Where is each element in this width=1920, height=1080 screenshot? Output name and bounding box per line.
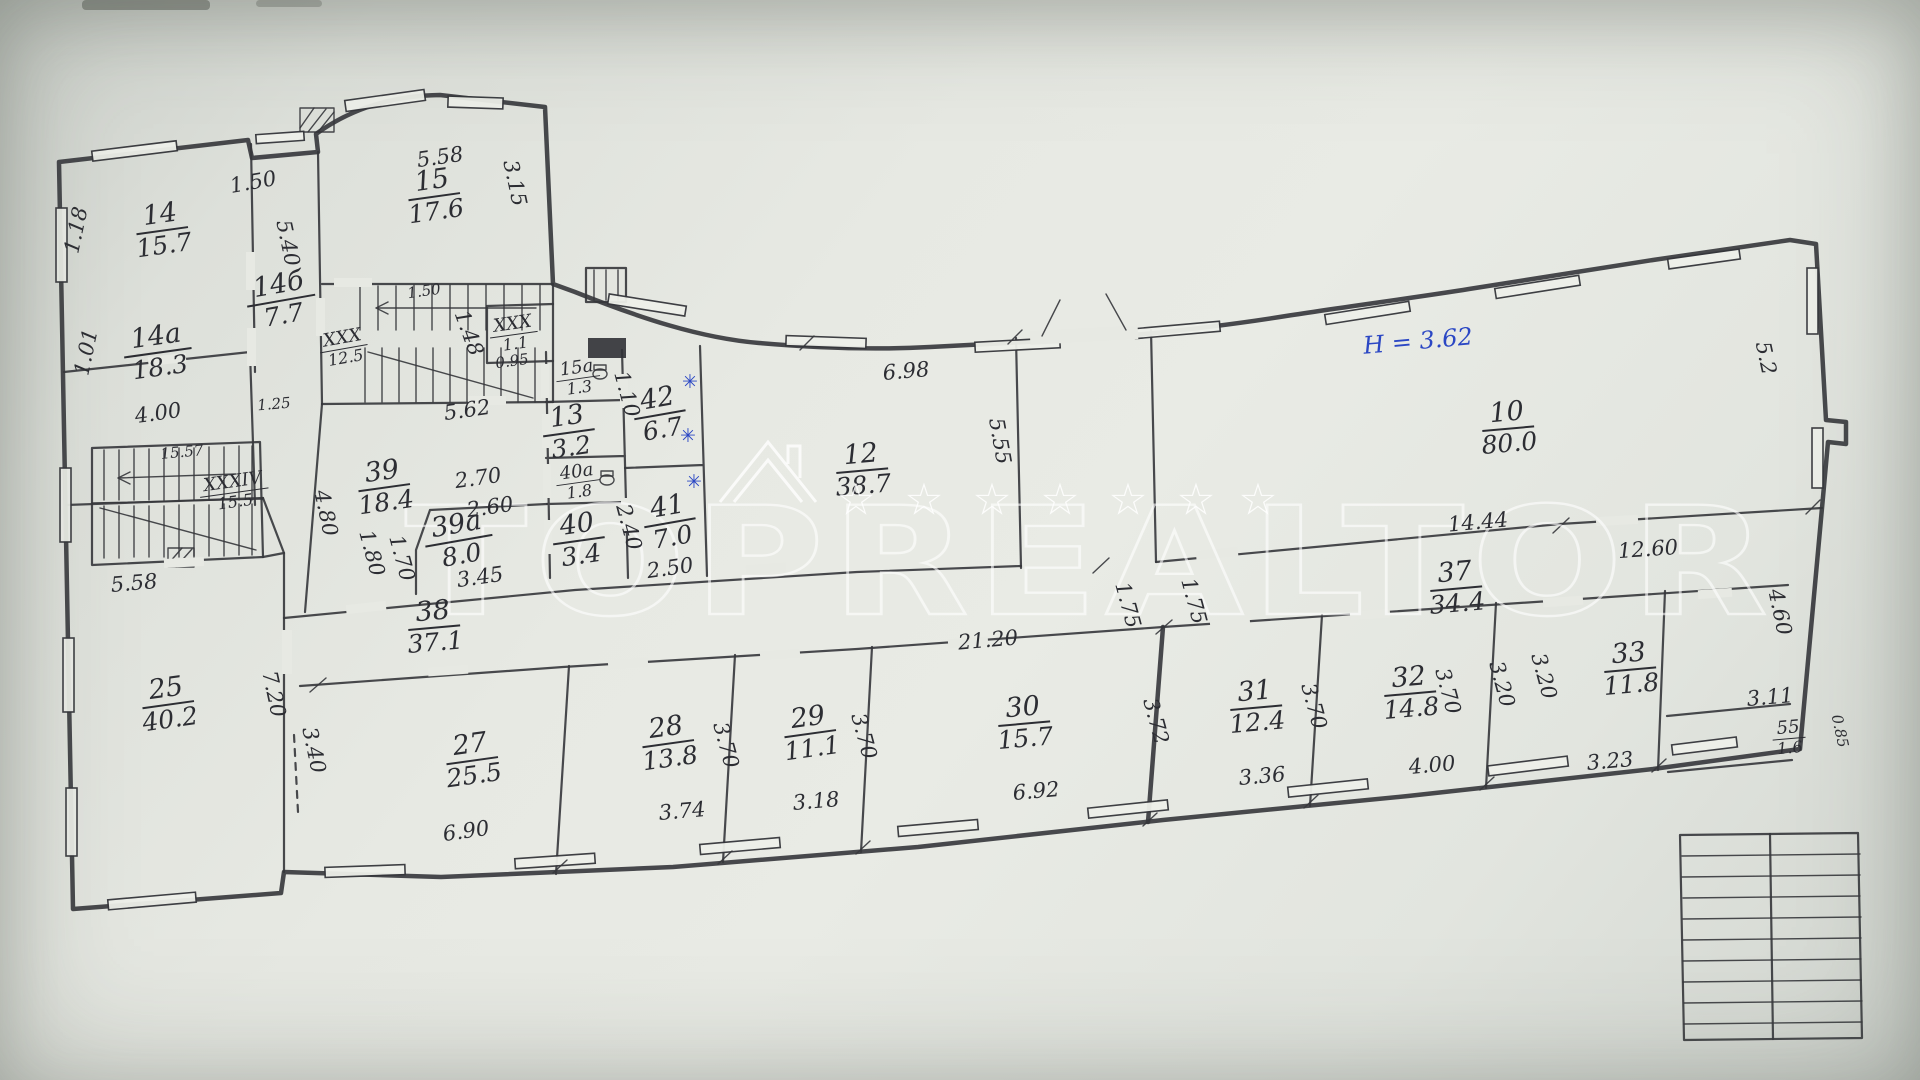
windows	[56, 89, 1823, 909]
scanned-floor-plan: TOPREALTOR 1415.714а18.314б7.71517.6XXX1…	[0, 0, 1920, 1080]
staircase-top	[360, 285, 540, 402]
staircase-exit-bottom-right	[1680, 833, 1862, 1040]
toilet-icon	[593, 365, 614, 485]
outer-walls	[59, 95, 1846, 909]
floorplan-drawing	[0, 0, 1920, 1080]
dimension-ticks	[310, 330, 1820, 873]
